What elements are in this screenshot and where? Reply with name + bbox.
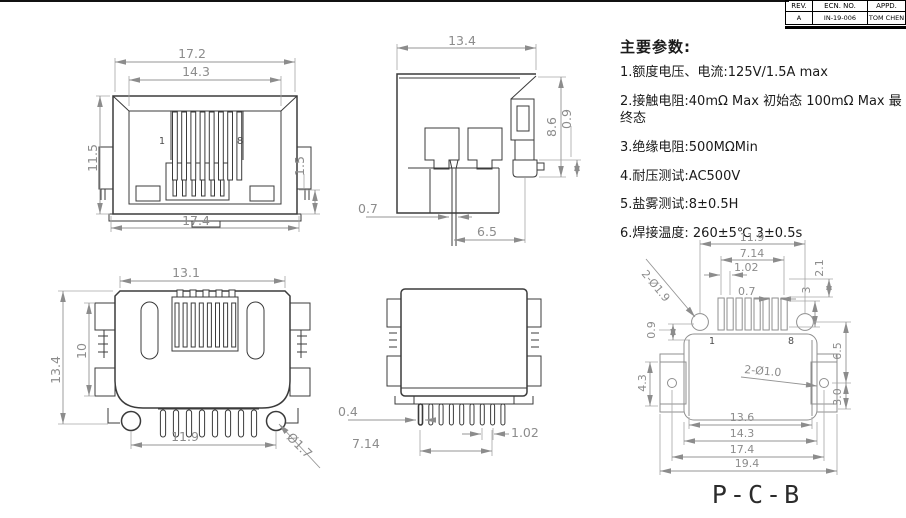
front-dim-height: 11.5 (85, 144, 100, 172)
side-dim-height: 8.6 (544, 117, 559, 137)
front-dim-side-tab: 1.5 (292, 156, 307, 176)
pcb-dim-pad-len-a: 2.1 (813, 259, 826, 277)
side-view-dimensions: 13.4 8.6 0.9 0.7 6.5 (358, 33, 581, 243)
pcb-pin1-label: 1 (709, 336, 715, 347)
bottom-view-outline (95, 290, 310, 437)
side-dim-foot: 0.9 (559, 109, 574, 129)
side-view: 13.4 8.6 0.9 0.7 6.5 (358, 33, 581, 246)
pcb-dim-tab-hole-offset: 3.0 (831, 388, 844, 406)
bottom-view: 13.1 13.4 10 11.9 Ø1.7 (48, 265, 320, 468)
drawing-sheet: REV. ECN. NO. APPD. A IN-19-006 TOM CHEN… (0, 0, 906, 518)
front-dim-opening-width: 14.3 (182, 64, 210, 79)
bottom-view-dimensions: 13.1 13.4 10 11.9 Ø1.7 (48, 265, 320, 468)
pcb-dim-tab-hole-span: 17.4 (730, 443, 755, 456)
pcb-dim-pad-pitch: 1.02 (734, 261, 759, 274)
pcb-dim-outer-width: 19.4 (735, 457, 760, 470)
front-pin8-label: 8 (237, 136, 243, 147)
front-view-outline (99, 96, 311, 227)
drawing-canvas: 1 8 17.2 14.3 11.5 1.5 17.4 (0, 0, 906, 518)
pcb-label-mount-holes: 2-Ø1.9 (639, 268, 673, 305)
pcb-dim-hole-to-hole: 6.5 (831, 342, 844, 360)
pcb-dimensions: 11.9 7.14 1.02 0.7 2.1 3 0.9 (636, 231, 851, 475)
pcb-layout-view: 1 8 11.9 7.14 1.02 0.7 2.1 (636, 231, 851, 509)
pcb-outline (660, 298, 837, 420)
side-view-outline (397, 74, 544, 246)
rear-view-dimensions: 0.4 7.14 1.02 (338, 404, 539, 456)
side-dim-pin-width: 0.7 (358, 201, 378, 216)
pcb-dim-pad-len-b: 3 (800, 287, 813, 294)
rear-dim-pin-thickness: 0.4 (338, 404, 358, 419)
pcb-pin8-label: 8 (788, 336, 794, 347)
front-pin1-label: 1 (159, 136, 165, 147)
rear-view: 0.4 7.14 1.02 (338, 289, 541, 456)
pcb-dim-pad-width: 0.7 (738, 285, 756, 298)
rear-view-outline (387, 289, 541, 425)
bottom-dim-body-width: 13.1 (172, 265, 200, 280)
pcb-label-tab-holes: 2-Ø1.0 (744, 363, 782, 379)
pcb-dim-hole-span: 11.9 (740, 231, 765, 244)
side-dim-pin-to-peg: 6.5 (477, 224, 497, 239)
side-dim-depth: 13.4 (448, 33, 476, 48)
pcb-dim-tab-height: 4.3 (636, 374, 649, 392)
pcb-view-title: P-C-B (712, 480, 802, 509)
rear-dim-pin-pitch: 1.02 (511, 425, 539, 440)
pcb-dim-inner-width: 14.3 (730, 427, 755, 440)
bottom-dim-body-height: 10 (74, 343, 89, 359)
front-dim-top-width: 17.2 (178, 46, 206, 61)
front-view: 1 8 17.2 14.3 11.5 1.5 17.4 (85, 46, 320, 232)
rear-dim-pin-span: 7.14 (352, 436, 380, 451)
pcb-dim-slot-width: 13.6 (730, 411, 755, 424)
bottom-dim-pin-span: 11.9 (171, 429, 199, 444)
bottom-dim-total-height: 13.4 (48, 356, 63, 384)
pcb-dim-pad-span: 7.14 (740, 247, 765, 260)
front-dim-bottom-width: 17.4 (182, 213, 210, 228)
bottom-dim-peg-dia: Ø1.7 (284, 430, 316, 462)
pcb-dim-edge-gap: 0.9 (645, 321, 658, 339)
